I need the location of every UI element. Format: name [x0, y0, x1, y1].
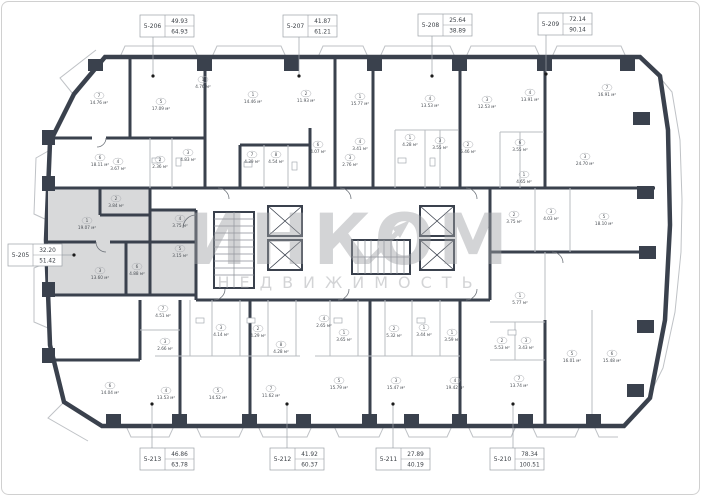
unit-id: 5-212: [274, 456, 292, 463]
leader-dot: [72, 253, 75, 256]
unit-id: 5-210: [494, 456, 512, 463]
room-number: 8: [275, 152, 278, 157]
room-number: 3: [550, 209, 553, 214]
room-area: 3.84 м²: [108, 203, 124, 208]
unit-area-total: 38.89: [449, 29, 466, 35]
room-number: 1: [252, 92, 255, 97]
room-number: 6: [611, 351, 614, 356]
room-area: 3.15 м²: [172, 253, 188, 258]
unit-area-living: 41.87: [314, 19, 331, 25]
room-number: 1: [202, 77, 205, 82]
unit-id: 5-213: [144, 456, 162, 463]
unit-area-living: 41.92: [301, 452, 318, 458]
room-number: 6: [109, 383, 112, 388]
room-number: 6: [519, 140, 522, 145]
room-area: 4.14 м²: [213, 332, 229, 337]
room-area: 18.10 м²: [595, 221, 613, 226]
room-area: 3.55 м²: [512, 147, 528, 152]
room-number: 2: [257, 326, 260, 331]
room-area: 12.53 м²: [478, 104, 496, 109]
watermark: ИНКОМ НЕДВИЖИМОСТЬ: [188, 199, 512, 292]
floorplan-image: ИНКОМ НЕДВИЖИМОСТЬ 119.07 м²23.84 м²313.…: [0, 0, 701, 496]
unit-area-living: 25.64: [449, 18, 466, 24]
room-area: 5.77 м²: [512, 300, 528, 305]
room-area: 2.66 м²: [157, 346, 173, 351]
room-area: 15.79 м²: [330, 385, 348, 390]
room-area: 3.65 м²: [336, 337, 352, 342]
room-number: 7: [606, 85, 609, 90]
room-number: 3: [99, 268, 102, 273]
room-number: 1: [451, 330, 454, 335]
room-number: 5: [217, 388, 220, 393]
room-number: 4: [429, 96, 432, 101]
room-area: 13.53 м²: [421, 103, 439, 108]
unit-id: 5-209: [542, 21, 560, 28]
room-area: 15.48 м²: [603, 358, 621, 363]
unit-area-living: 32.20: [39, 248, 56, 254]
room-number: 5: [571, 351, 574, 356]
room-area: 4.28 м²: [273, 349, 289, 354]
room-number: 7: [518, 376, 521, 381]
room-area: 4.88 м²: [129, 271, 145, 276]
room-number: 5: [603, 214, 606, 219]
leader-dot: [430, 74, 433, 77]
unit-id: 5-207: [287, 23, 305, 30]
unit-id: 5-211: [380, 456, 398, 463]
unit-area-total: 90.14: [569, 28, 586, 34]
unit-area-living: 49.93: [171, 19, 188, 25]
room-area: 13.91 м²: [521, 97, 539, 102]
room-area: 2.65 м²: [316, 323, 332, 328]
leader-dot: [297, 74, 300, 77]
room-area: 18.11 м²: [91, 162, 109, 167]
unit-area-living: 72.14: [569, 17, 586, 23]
room-area: 15.47 м²: [387, 385, 405, 390]
room-number: 2: [513, 212, 516, 217]
room-number: 3: [525, 338, 528, 343]
room-number: 7: [270, 386, 273, 391]
room-area: 5.46 м²: [460, 149, 476, 154]
room-area: 11.62 м²: [262, 393, 280, 398]
room-area: 3.44 м²: [416, 332, 432, 337]
room-area: 4.83 м²: [180, 157, 196, 162]
room-number: 3: [164, 339, 167, 344]
room-area: 3.41 м²: [352, 146, 368, 151]
unit-area-total: 61.21: [314, 30, 331, 36]
room-area: 4.29 м²: [250, 333, 266, 338]
room-area: 4.51 м²: [155, 313, 171, 318]
room-number: 2: [501, 338, 504, 343]
leader-dot: [150, 402, 153, 405]
room-area: 24.70 м²: [576, 161, 594, 166]
room-number: 1: [423, 325, 426, 330]
room-number: 2: [305, 91, 308, 96]
room-number: 6: [99, 155, 102, 160]
room-number: 1: [86, 218, 89, 223]
unit-area-living: 46.86: [171, 452, 188, 458]
unit-area-total: 40.19: [407, 463, 424, 469]
floor-plan-canvas: ИНКОМ НЕДВИЖИМОСТЬ 119.07 м²23.84 м²313.…: [0, 0, 701, 496]
room-area: 15.77 м²: [351, 101, 369, 106]
room-number: 4: [117, 159, 120, 164]
room-number: 3: [439, 138, 442, 143]
room-area: 4.03 м²: [543, 216, 559, 221]
room-area: 4.76 м²: [195, 84, 211, 89]
room-number: 5: [179, 246, 182, 251]
room-number: 3: [395, 378, 398, 383]
room-number: 1: [409, 135, 412, 140]
room-number: 5: [338, 378, 341, 383]
leader-dot: [544, 72, 547, 75]
leader-dot: [151, 74, 154, 77]
unit-id: 5-205: [12, 252, 30, 259]
room-number: 5: [160, 99, 163, 104]
room-number: 2: [467, 142, 470, 147]
watermark-subtitle: НЕДВИЖИМОСТЬ: [217, 273, 482, 292]
room-area: 4.65 м²: [516, 179, 532, 184]
room-area: 4.39 м²: [244, 159, 260, 164]
unit-area-total: 64.93: [171, 30, 188, 36]
room-area: 4.28 м²: [402, 142, 418, 147]
room-number: 3: [486, 97, 489, 102]
leader-dot: [511, 402, 514, 405]
room-number: 7: [98, 93, 101, 98]
room-number: 2: [159, 157, 162, 162]
room-area: 3.75 м²: [506, 219, 522, 224]
room-area: 14.04 м²: [101, 390, 119, 395]
room-area: 13.74 м²: [510, 383, 528, 388]
room-number: 6: [136, 264, 139, 269]
room-area: 2.76 м²: [342, 162, 358, 167]
room-area: 3.55 м²: [432, 145, 448, 150]
leader-dot: [391, 402, 394, 405]
room-number: 1: [523, 172, 526, 177]
room-number: 3: [584, 154, 587, 159]
room-area: 11.93 м²: [297, 98, 315, 103]
room-number: 3: [220, 325, 223, 330]
room-number: 2: [393, 326, 396, 331]
unit-area-total: 100.51: [519, 463, 540, 469]
room-number: 1: [519, 293, 522, 298]
room-area: 4.54 м²: [268, 159, 284, 164]
room-area: 3.67 м²: [110, 166, 126, 171]
unit-id: 5-208: [422, 22, 440, 29]
unit-area-living: 78.34: [521, 452, 538, 458]
unit-area-total: 60.37: [301, 463, 318, 469]
room-number: 7: [251, 152, 254, 157]
room-area: 16.01 м²: [563, 358, 581, 363]
unit-area-total: 63.78: [171, 463, 188, 469]
room-number: 3: [349, 155, 352, 160]
room-area: 13.60 м²: [91, 275, 109, 280]
room-area: 5.32 м²: [386, 333, 402, 338]
room-area: 14.52 м²: [209, 395, 227, 400]
room-number: 1: [359, 94, 362, 99]
room-area: 19.07 м²: [78, 225, 96, 230]
room-number: 4: [165, 388, 168, 393]
leader-dot: [285, 402, 288, 405]
room-area: 13.53 м²: [157, 395, 175, 400]
room-number: 2: [115, 196, 118, 201]
room-number: 4: [454, 378, 457, 383]
room-number: 3: [187, 150, 190, 155]
room-area: 2.36 м²: [152, 164, 168, 169]
room-number: 4: [179, 216, 182, 221]
room-number: 6: [317, 142, 320, 147]
room-area: 4.07 м²: [310, 149, 326, 154]
room-number: 4: [529, 90, 532, 95]
room-area: 14.76 м²: [90, 100, 108, 105]
room-number: 4: [323, 316, 326, 321]
room-area: 17.09 м²: [152, 106, 170, 111]
watermark-title: ИНКОМ: [188, 199, 512, 281]
room-area: 3.59 м²: [444, 337, 460, 342]
room-area: 5.53 м²: [494, 345, 510, 350]
room-area: 16.91 м²: [598, 92, 616, 97]
room-number: 7: [162, 306, 165, 311]
room-number: 1: [343, 330, 346, 335]
unit-id: 5-206: [144, 23, 162, 30]
room-area: 19.42 м²: [446, 385, 464, 390]
room-number: 4: [359, 139, 362, 144]
room-area: 14.46 м²: [244, 99, 262, 104]
unit-area-total: 51.42: [39, 259, 56, 265]
room-number: 8: [280, 342, 283, 347]
unit-area-living: 27.89: [407, 452, 424, 458]
room-area: 3.43 м²: [518, 345, 534, 350]
room-area: 3.75 м²: [172, 223, 188, 228]
